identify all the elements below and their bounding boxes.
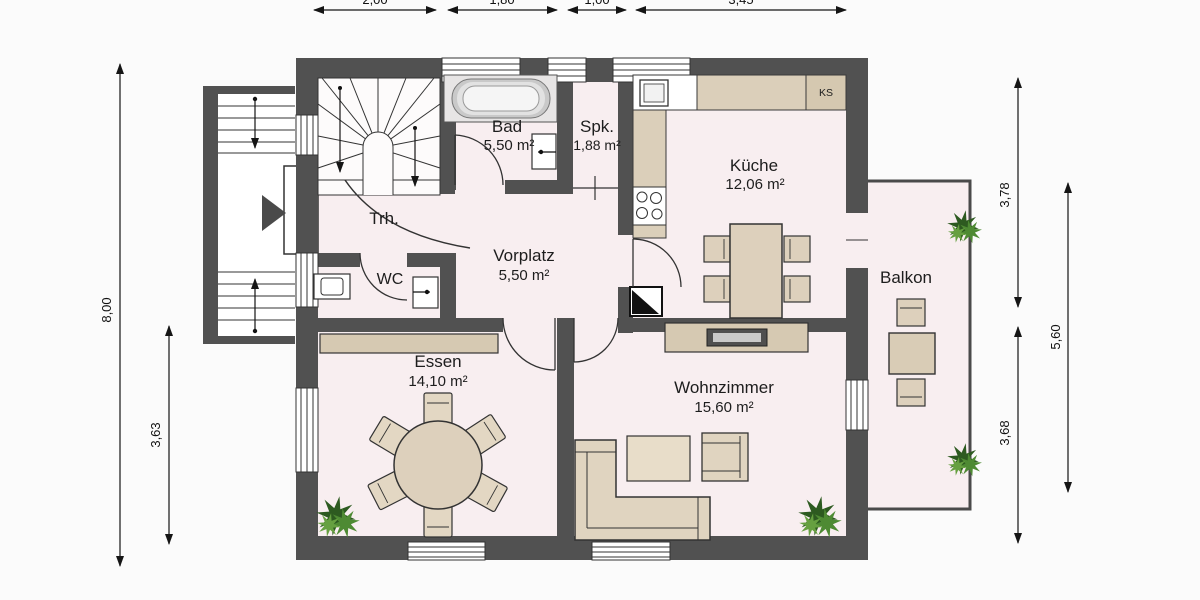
dim-right-outer: 5,60 (1048, 324, 1063, 349)
room-label-balkon: Balkon (880, 268, 932, 287)
dining-table (394, 421, 482, 509)
balcony-door-opening (846, 213, 868, 268)
coffee-table (627, 436, 690, 481)
bad-washbasin (532, 134, 556, 169)
room-label-trh: Trh. (369, 209, 399, 228)
window-bottom-wohnzimmer (592, 542, 670, 560)
dim-right-lower: 3,68 (997, 420, 1012, 445)
wc-washbasin (413, 277, 438, 308)
kitchen-table (730, 224, 782, 318)
window-right-wohnzimmer (846, 380, 868, 430)
room-area-kueche: 12,06 m² (725, 176, 784, 193)
balcony-table (889, 333, 935, 374)
dim-top-2: 1,80 (489, 0, 514, 7)
stove (633, 187, 666, 225)
balcony-chair (897, 299, 925, 326)
dim-left-lower: 3,63 (148, 422, 163, 447)
window-left-stair (296, 115, 318, 155)
room-area-wohnzimmer: 15,60 m² (694, 399, 753, 416)
kitchen-chair (784, 276, 810, 302)
kitchen-chair (704, 276, 730, 302)
dim-top-4: 3,45 (728, 0, 753, 7)
kitchen-sink (640, 80, 668, 106)
bathtub (444, 75, 557, 122)
dim-top-1: 2,00 (362, 0, 387, 7)
fridge-ks: KS (806, 75, 846, 110)
room-area-bad: 5,50 m² (484, 137, 535, 154)
room-label-spk: Spk. (580, 117, 614, 136)
dim-left-total: 8,00 (99, 297, 114, 322)
room-area-spk: 1,88 m² (573, 137, 621, 153)
chimney (630, 287, 662, 316)
kitchen-chair (784, 236, 810, 262)
kitchen-chair (704, 236, 730, 262)
room-label-wc: WC (377, 271, 404, 288)
ks-label: KS (819, 87, 833, 99)
armchair (702, 433, 748, 481)
room-label-essen: Essen (414, 352, 461, 371)
room-area-vorplatz: 5,50 m² (499, 267, 550, 284)
dim-top-3: 1,00 (584, 0, 609, 7)
dim-right-upper: 3,78 (997, 182, 1012, 207)
room-area-essen: 14,10 m² (408, 373, 467, 390)
sideboard (320, 334, 498, 353)
room-label-wohnzimmer: Wohnzimmer (674, 378, 774, 397)
room-label-vorplatz: Vorplatz (493, 246, 554, 265)
wc-toilet (314, 274, 350, 299)
room-label-kueche: Küche (730, 156, 778, 175)
window-left-essen (296, 388, 318, 472)
room-label-bad: Bad (492, 117, 522, 136)
balcony-chair (897, 379, 925, 406)
floor-plan: KS (0, 0, 1200, 600)
window-bottom-essen (408, 542, 485, 560)
tv (707, 329, 767, 346)
